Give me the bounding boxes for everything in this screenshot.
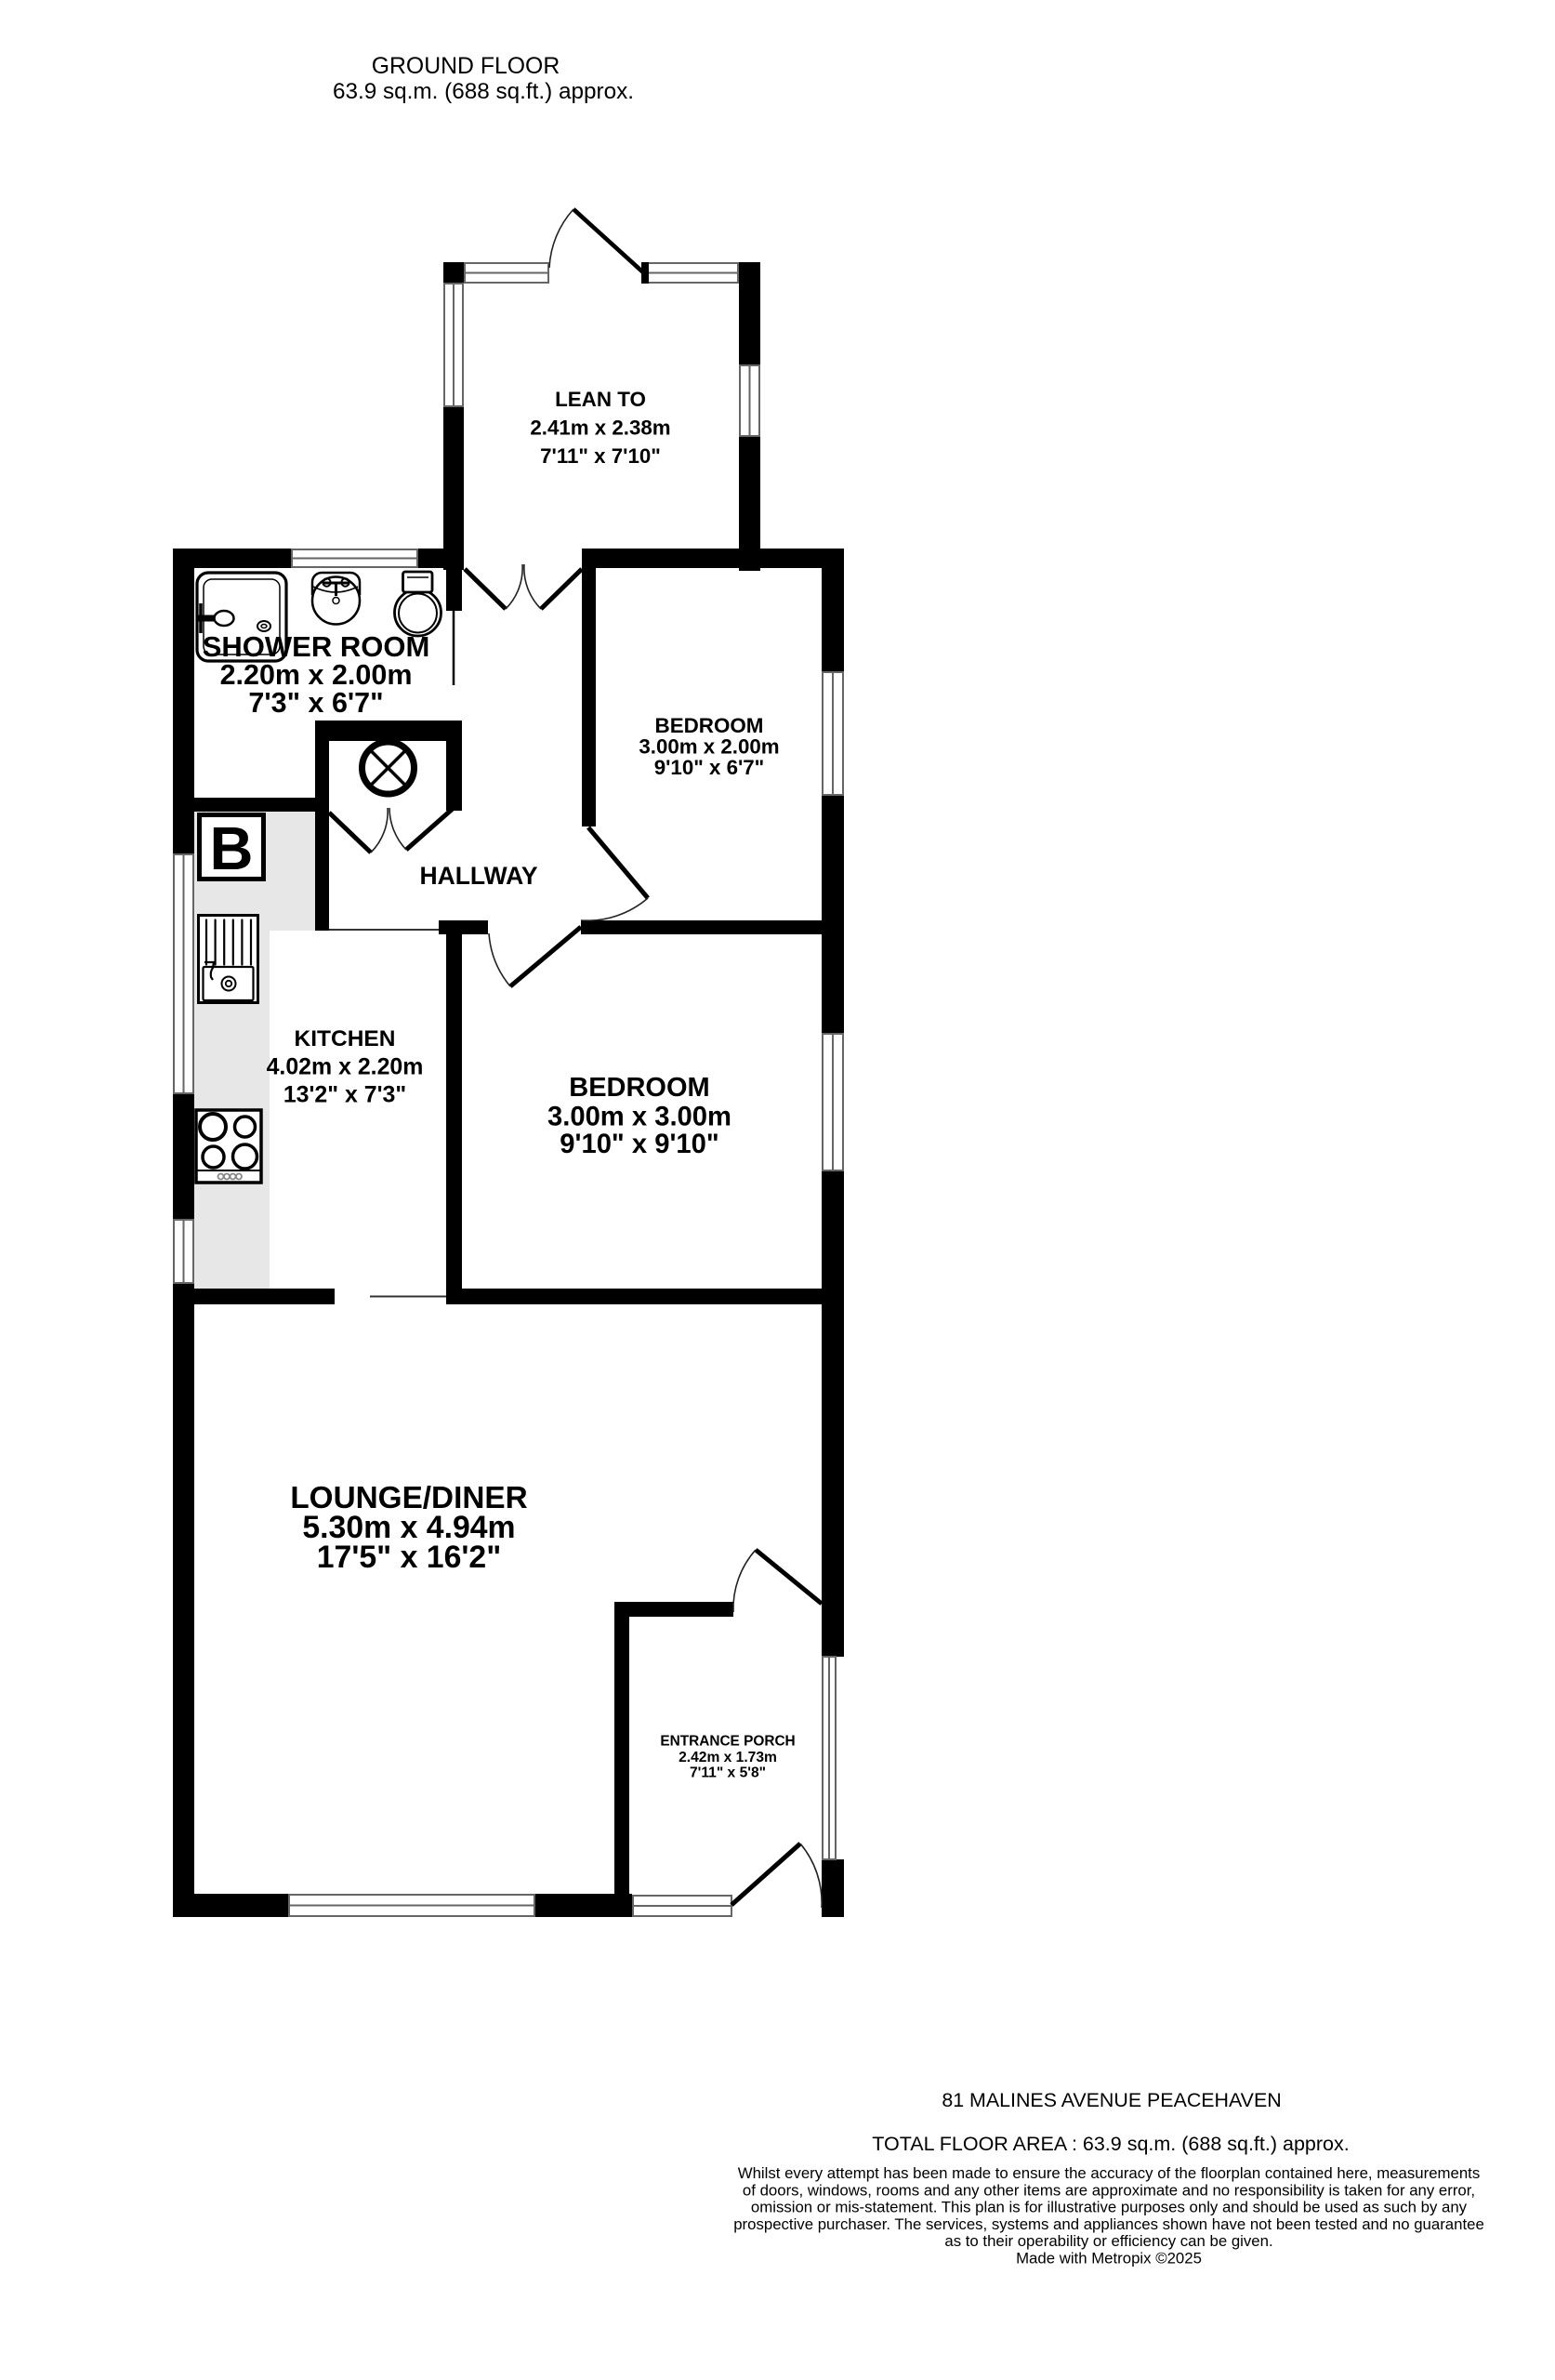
svg-text:9'10" x 9'10": 9'10" x 9'10"	[560, 1130, 718, 1159]
svg-text:3.00m x 3.00m: 3.00m x 3.00m	[547, 1103, 731, 1132]
svg-text:9'10" x 6'7": 9'10" x 6'7"	[654, 756, 765, 779]
svg-text:Whilst every attempt has been: Whilst every attempt has been made to en…	[738, 2164, 1480, 2182]
svg-text:SHOWER ROOM: SHOWER ROOM	[203, 630, 430, 663]
svg-text:2.42m x 1.73m: 2.42m x 1.73m	[679, 1750, 777, 1765]
svg-text:of doors, windows, rooms and a: of doors, windows, rooms and any other i…	[743, 2181, 1475, 2199]
svg-text:17'5" x 16'2": 17'5" x 16'2"	[317, 1540, 501, 1575]
svg-text:LEAN TO: LEAN TO	[555, 388, 646, 411]
svg-text:7'3" x 6'7": 7'3" x 6'7"	[248, 687, 383, 719]
svg-text:13'2" x 7'3": 13'2" x 7'3"	[283, 1082, 406, 1108]
svg-text:BEDROOM: BEDROOM	[655, 714, 764, 737]
svg-text:Made with Metropix ©2025: Made with Metropix ©2025	[1016, 2250, 1202, 2268]
svg-text:ENTRANCE PORCH: ENTRANCE PORCH	[660, 1734, 795, 1750]
svg-text:omission or mis-statement. Thi: omission or mis-statement. This plan is …	[751, 2199, 1468, 2216]
svg-text:prospective purchaser. The ser: prospective purchaser. The services, sys…	[733, 2215, 1484, 2233]
svg-text:2.20m x 2.00m: 2.20m x 2.00m	[220, 659, 413, 691]
svg-text:HALLWAY: HALLWAY	[419, 862, 537, 890]
svg-text:81 MALINES AVENUE PEACEHAVEN: 81 MALINES AVENUE PEACEHAVEN	[942, 2089, 1281, 2111]
svg-text:7'11" x 5'8": 7'11" x 5'8"	[690, 1765, 766, 1781]
svg-text:TOTAL FLOOR AREA : 63.9 sq.m.: TOTAL FLOOR AREA : 63.9 sq.m. (688 sq.ft…	[872, 2133, 1349, 2155]
svg-text:3.00m x 2.00m: 3.00m x 2.00m	[639, 735, 779, 759]
svg-text:B: B	[210, 814, 254, 882]
svg-text:GROUND FLOOR: GROUND FLOOR	[372, 54, 560, 79]
svg-text:BEDROOM: BEDROOM	[569, 1073, 709, 1103]
svg-text:2.41m x 2.38m: 2.41m x 2.38m	[530, 416, 670, 440]
svg-text:as to their operability or eff: as to their operability or efficiency ca…	[944, 2232, 1272, 2250]
svg-text:63.9 sq.m. (688 sq.ft.) approx: 63.9 sq.m. (688 sq.ft.) approx.	[333, 79, 634, 104]
svg-text:KITCHEN: KITCHEN	[295, 1026, 396, 1051]
svg-text:4.02m x 2.20m: 4.02m x 2.20m	[267, 1054, 424, 1080]
svg-text:7'11" x 7'10": 7'11" x 7'10"	[540, 444, 661, 468]
